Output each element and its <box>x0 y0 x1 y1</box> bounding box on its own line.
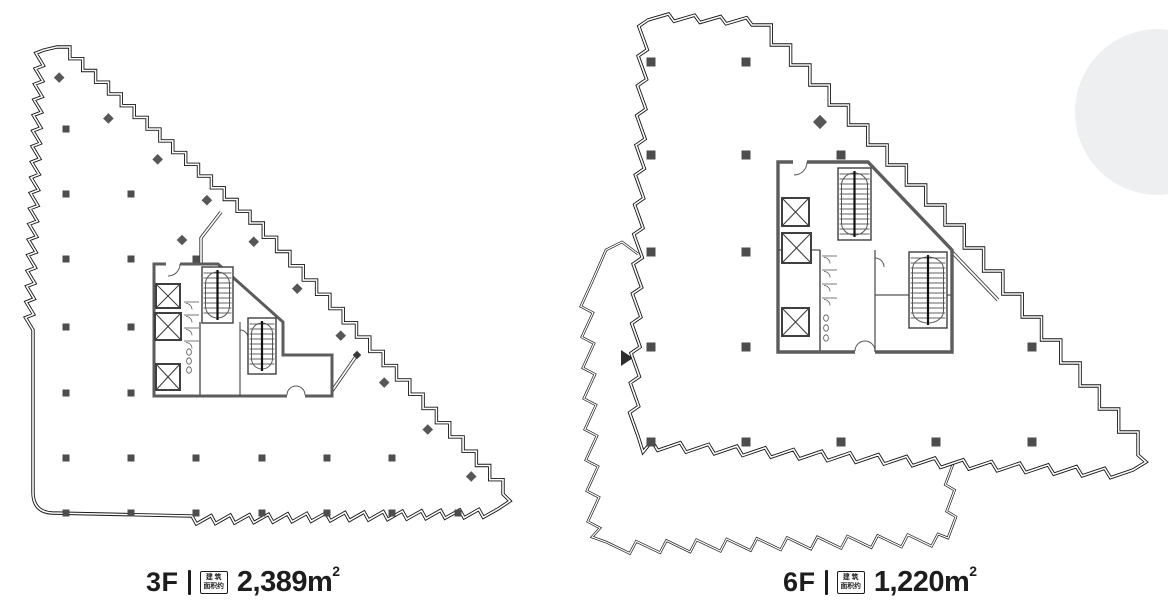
floor-number-6f: 6F <box>783 567 816 598</box>
floor-plans-svg <box>0 0 1168 611</box>
label-separator <box>825 570 828 595</box>
floor-plan-3f <box>26 47 511 524</box>
area-value-6f: 1,220m2 <box>874 566 977 599</box>
area-type-badge: 建 筑 面积约 <box>200 571 228 593</box>
floor-plan-canvas: 3F 建 筑 面积约 2,389m2 6F 建 筑 面积约 1,220m2 <box>0 0 1168 611</box>
floor-label-6f: 6F 建 筑 面积约 1,220m2 <box>783 566 977 599</box>
floor-label-3f: 3F 建 筑 面积约 2,389m2 <box>146 566 340 599</box>
floor-number-3f: 3F <box>146 567 179 598</box>
badge-line1: 建 筑 <box>841 574 861 582</box>
label-separator <box>188 570 191 595</box>
floor-plan-6f <box>581 14 1146 553</box>
badge-line1: 建 筑 <box>204 574 224 582</box>
decor-circle <box>1075 29 1168 195</box>
area-value-3f: 2,389m2 <box>237 566 340 599</box>
badge-line2: 面积约 <box>204 583 224 591</box>
badge-line2: 面积约 <box>841 583 861 591</box>
area-type-badge: 建 筑 面积约 <box>837 571 865 593</box>
